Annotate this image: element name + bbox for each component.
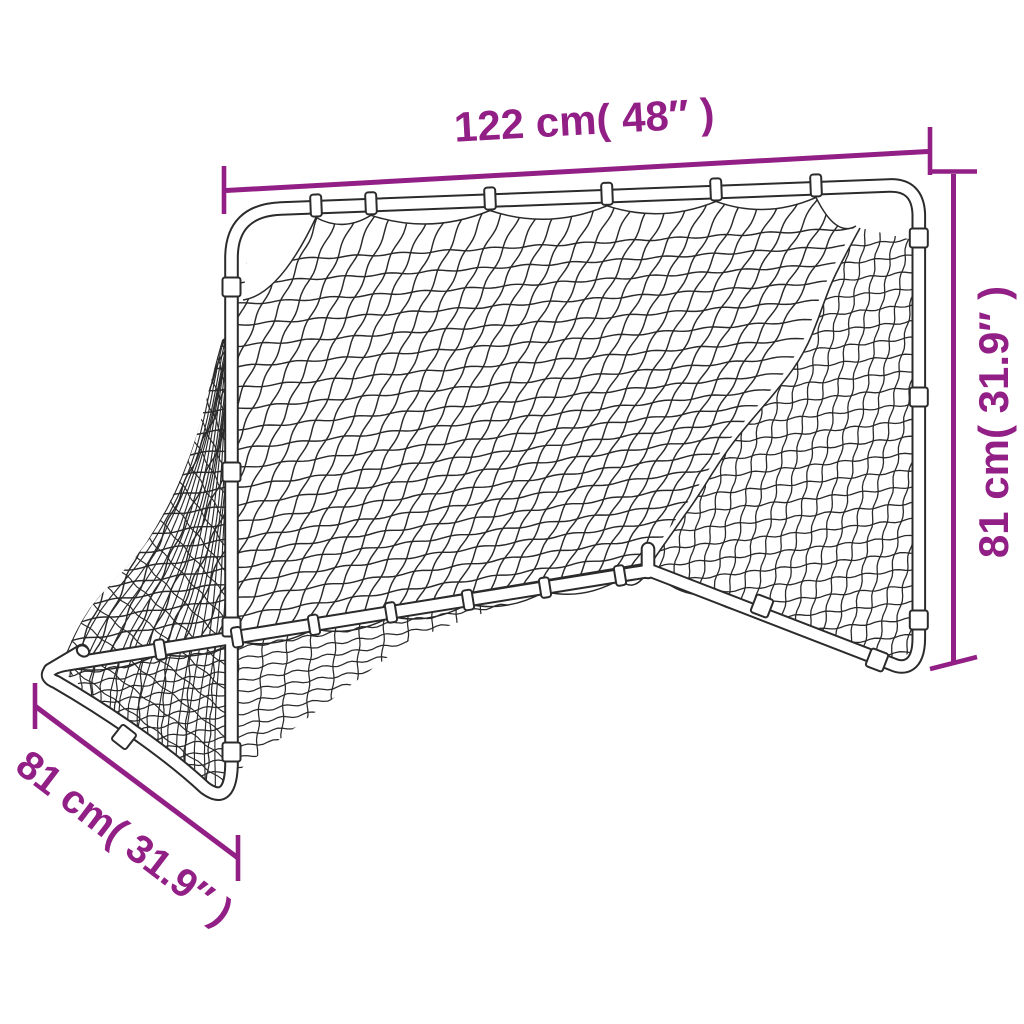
svg-text:81 cm( 31.9″ ): 81 cm( 31.9″ ): [970, 286, 1017, 558]
